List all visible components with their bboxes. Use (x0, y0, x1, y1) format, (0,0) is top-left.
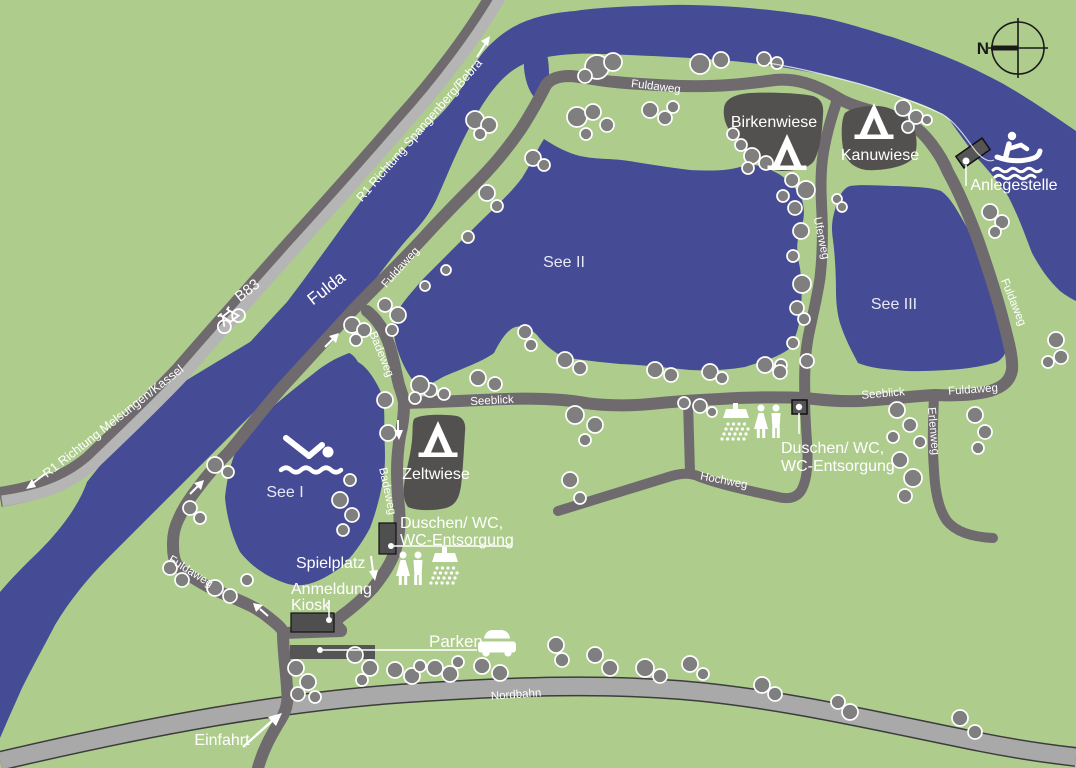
svg-text:Zeltwiese: Zeltwiese (402, 466, 470, 483)
svg-text:Kanuwiese: Kanuwiese (841, 147, 919, 164)
svg-text:Seeblick: Seeblick (470, 394, 514, 408)
svg-text:Anmeldung: Anmeldung (291, 581, 372, 598)
svg-text:WC-Entsorgung: WC-Entsorgung (781, 458, 895, 475)
svg-text:Birkenwiese: Birkenwiese (731, 114, 817, 131)
svg-text:Duschen/ WC,: Duschen/ WC, (400, 515, 503, 532)
svg-text:See III: See III (871, 296, 917, 313)
svg-text:Anlegestelle: Anlegestelle (970, 177, 1057, 194)
svg-text:Einfahrt: Einfahrt (194, 732, 250, 749)
svg-text:Duschen/ WC,: Duschen/ WC, (781, 440, 884, 457)
svg-text:N: N (977, 39, 989, 58)
svg-text:WC-Entsorgung: WC-Entsorgung (400, 532, 514, 549)
svg-text:See II: See II (543, 254, 585, 271)
svg-text:Kiosk: Kiosk (291, 597, 331, 614)
svg-text:Spielplatz: Spielplatz (296, 555, 365, 572)
svg-text:See I: See I (266, 484, 303, 501)
svg-text:Parken: Parken (429, 632, 483, 651)
